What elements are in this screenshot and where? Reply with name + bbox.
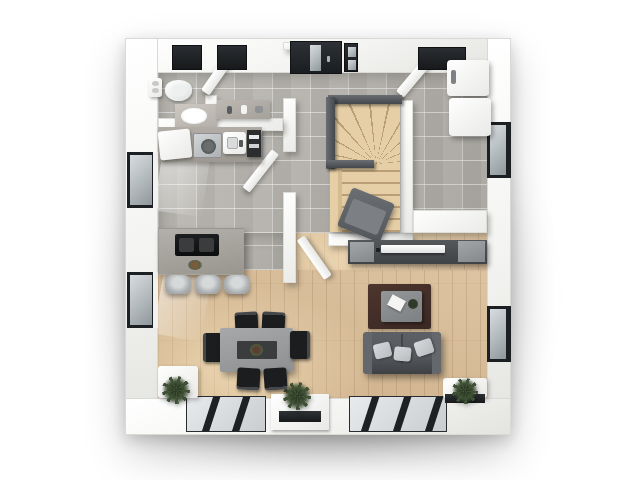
planter-tray [279,411,321,422]
handrail-top [328,95,402,104]
door-mullion [200,396,221,432]
exterior-wall-left [125,38,158,435]
potted-plant-left [162,376,190,404]
paper-roll [152,81,159,86]
wall-stair-pantry [400,100,413,233]
stair-winder-treads [330,100,400,164]
sink-unit [223,132,246,154]
door-mullion [423,396,444,432]
sidelight-glass [348,47,356,57]
dining-chair-bottom-1 [236,367,260,390]
window-sill [153,272,158,328]
dining-wall-window [127,272,158,328]
towel [249,135,259,139]
remote [376,248,380,252]
washbasin [181,108,207,124]
decor-bowl [188,260,202,270]
bar-stool-3 [224,275,250,294]
dining-table [220,328,293,372]
bar-stool-1 [165,275,191,294]
floorplan-render [0,0,640,480]
potted-plant-right [452,378,478,404]
door-mullion [359,396,380,432]
window-glass [130,155,152,205]
window-glass [130,275,152,325]
dining-chair-bottom-2 [263,367,287,391]
exterior-wall-right [487,38,511,435]
speaker-right [458,241,485,262]
towel [249,144,259,148]
entrance-door-handle [327,56,330,62]
door-mullion [230,396,251,432]
sofa-cushion-2 [393,346,411,362]
chair-seat [344,198,387,236]
faucet [227,106,232,114]
induction-hob [175,234,219,256]
tv-sideboard [348,240,487,264]
sliding-door-right [349,396,447,432]
dining-chair-right [290,331,310,359]
dishwasher-door [201,139,216,154]
wall-pantry-bottom [413,210,487,233]
sidelight-glass-lower [348,60,356,70]
bathroom-window-left [172,45,202,70]
speaker-left [350,242,374,262]
window-light-streak-1 [154,153,210,217]
handrail-mid [326,160,374,168]
towel-shelf [247,130,261,157]
tv [381,245,445,253]
house [125,38,511,435]
bath-accessory [255,106,263,113]
sofa-arm-left [363,332,372,374]
dishwasher [193,133,222,158]
bar-stool-2 [195,275,221,294]
decor-plant [408,299,418,309]
entrance-door-glass [310,45,321,71]
wall-hall-left-lower [283,192,296,283]
door-mullion [391,396,412,432]
sliding-door-left [186,396,266,432]
handrail-left [326,97,335,169]
vanity-counter-left [175,104,217,128]
centerpiece [250,344,263,356]
kitchen-faucet [239,140,243,147]
magazine [387,294,406,312]
paper-roll [152,88,159,93]
living-side-window [487,306,511,362]
toilet [165,80,192,101]
bathroom-window-right [217,45,247,70]
sink-basin [227,137,238,149]
fridge-handle [451,70,456,84]
coffee-table [381,291,422,322]
entrance-door [290,41,342,74]
cooking-island [158,228,244,275]
hob-zone-left [179,238,194,252]
freezer-column [449,98,491,136]
entrance-sidelight [344,43,358,72]
window-glass [490,309,506,359]
vanity-counter-right [217,100,270,119]
wall-bathroom-right-mid [283,98,296,152]
kitchen-wall-window [127,152,158,208]
corner-cabinet [158,128,193,160]
hob-zone-right [199,238,214,252]
window-glass [490,125,506,175]
sofa-arm-right [432,332,441,374]
soap-dispenser [241,105,247,114]
toilet-seat [171,84,187,97]
fridge-column [447,60,489,96]
toilet-paper-shelf [149,78,162,97]
